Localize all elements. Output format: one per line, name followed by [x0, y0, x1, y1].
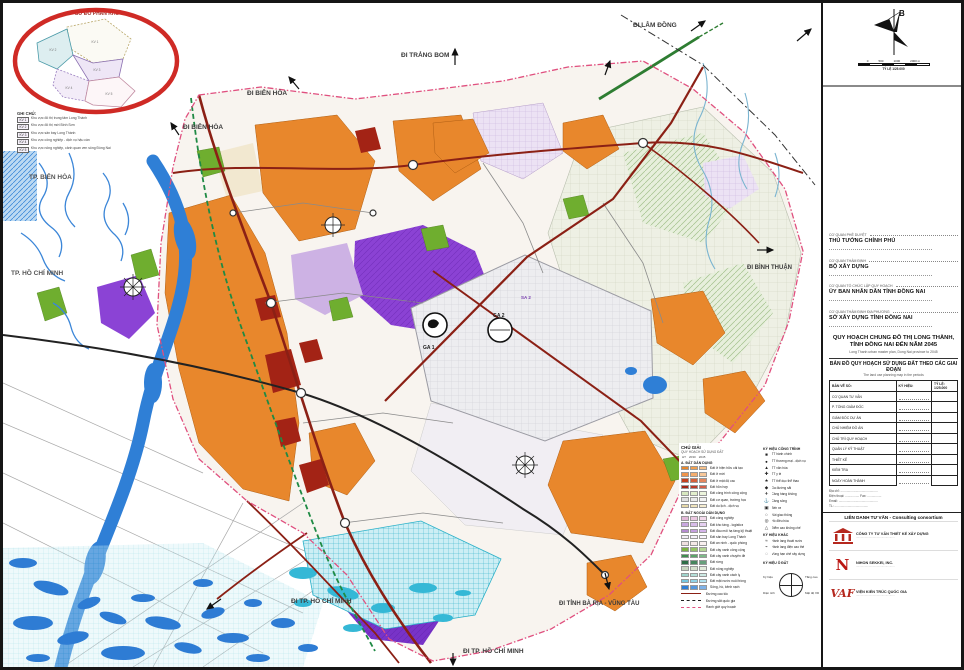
railway-line-sample	[681, 600, 701, 601]
table-row-value	[896, 444, 931, 455]
inset-legend-row: KV 2 Khu vực đô thị mới Bình Sơn	[17, 124, 175, 130]
legend-swatch	[690, 573, 698, 578]
table-row-signature	[932, 444, 958, 455]
legend-swatch	[681, 535, 689, 540]
legend-row-label: Đường cao tốc	[706, 592, 728, 596]
legend-swatch	[699, 478, 707, 483]
consultant-detail: ........................................…	[856, 565, 895, 569]
legend-swatch	[681, 579, 689, 584]
legend-swatch	[699, 491, 707, 496]
table-row-label: QUẢN LÝ KỸ THUẬT	[830, 444, 897, 455]
inset-legend-row: KV 3 Khu vực sân bay Long Thành	[17, 132, 175, 138]
consultant-detail: ........................................…	[856, 594, 907, 598]
legend-symbol-icon: ✈	[763, 491, 770, 497]
label-di-lam-dong: ĐI LÂM ĐỒNG	[633, 19, 677, 29]
legend-symbol-row: ✚ TT y tế	[763, 471, 815, 478]
label-di-bien-hoa-2: ĐI BIÊN HÒA	[183, 122, 223, 131]
legend-swatch	[690, 466, 698, 471]
signature-line	[829, 295, 932, 301]
label-ga2: GA 2	[493, 313, 505, 319]
legend-swatch	[681, 585, 689, 590]
inset-legend-row: KV 5 Khu vực nông nghiệp, cảnh quan ven …	[17, 147, 175, 153]
legend-swatch	[681, 504, 689, 509]
legend-swatch	[690, 560, 698, 565]
legend-symbol-row: ◌ Vùng hạn chế xây dựng	[763, 551, 815, 558]
table-row-signature	[932, 454, 958, 465]
legend-symbol-icon: ○	[763, 512, 770, 517]
label-ga1: GA 1	[423, 345, 435, 351]
legend-row-label: Đất cây xanh cách ly	[710, 573, 740, 577]
legend-row-label: Đường sắt quốc gia	[706, 599, 735, 603]
consortium-line: LIÊN DANH TƯ VẤN - Consulting consortium	[823, 512, 964, 521]
table-row: CƠ QUAN TƯ VẤN	[830, 391, 958, 402]
north-arrow-icon: B	[866, 7, 922, 57]
legend-phase: 2045	[699, 455, 706, 459]
legend-group-a: Đất ở hiện hữu cải tạo Đất ở mới	[681, 465, 761, 509]
legend-symbol-row: △ Điểm cao khống chế	[763, 525, 815, 532]
scale-caption: TỶ LỆ 1/25.000	[882, 67, 904, 71]
legend-symbol-icon: ★	[763, 478, 770, 484]
highway-line-sample	[681, 593, 701, 594]
legend-row-label: Đất công trình công cộng	[710, 491, 747, 495]
drawing-title-block: BẢN ĐỒ QUY HOẠCH SỬ DỤNG ĐẤT THEO CÁC GI…	[829, 358, 958, 377]
legend-row-label: Đất ở mới	[710, 472, 725, 476]
legend-swatch	[690, 497, 698, 502]
table-row-label: NGÀY HOÀN THÀNH	[830, 475, 897, 486]
scale-bar: 050010002000 m TỶ LỆ 1/25.000	[858, 59, 930, 71]
legend-swatch	[699, 560, 707, 565]
legend-row-label: Đất cây xanh chuyên đề	[710, 554, 745, 558]
agency-role-label: CƠ QUAN THẨM ĐỊNH ĐỊA PHƯƠNG	[829, 310, 890, 314]
legend-symbol-icon: ▲	[763, 465, 770, 470]
table-row: GIÁM ĐỐC DỰ ÁN	[830, 412, 958, 423]
inset-svg: SƠ ĐỒ PHÂN KHU KV 1 KV 2 KV 3 KV 4 KV 5	[9, 5, 181, 117]
legend-swatch	[699, 554, 707, 559]
legend-swatch	[690, 585, 698, 590]
inset-zone-code: KV 1	[17, 117, 29, 123]
legend-swatch	[690, 541, 698, 546]
agency-block: CƠ QUAN PHÊ DUYỆT THỦ TƯỚNG CHÍNH PHỦ	[829, 233, 958, 250]
table-row: THIẾT KẾ	[830, 454, 958, 465]
legend-swatch	[681, 554, 689, 559]
agency-name: SỞ XÂY DỰNG TỈNH ĐỒNG NAI	[829, 315, 958, 321]
signature-line	[829, 244, 932, 250]
legend-swatch	[699, 497, 707, 502]
legend-row-label: Đất đầu mối hạ tầng kỹ thuật	[710, 529, 752, 533]
legend-symbol-label: Bến xe	[772, 506, 782, 510]
legend-swatch	[681, 466, 689, 471]
legend-line-hwy: Đường cao tốc	[681, 591, 761, 598]
signature-line	[829, 321, 932, 327]
legend-symbol-label: Hồ điều hòa	[772, 519, 789, 523]
inset-zone-code: KV 2	[17, 124, 29, 130]
plan-sheet: ĐI TRẢNG BOM ĐI LÂM ĐỒNG ĐI BIÊN HÒA ĐI …	[0, 0, 964, 670]
legend-swatch	[699, 541, 707, 546]
legend-symbol-row: ★ TT thể dục thể thao	[763, 478, 815, 485]
legend-symbol-row: ◆ Ga đường sắt	[763, 484, 815, 491]
block-note-title: KÝ HIỆU Ô ĐẤT	[763, 561, 815, 565]
legend-group-b: Đất công nghiệp Đất kho tàng - logistics	[681, 515, 761, 546]
inset-map: SƠ ĐỒ PHÂN KHU KV 1 KV 2 KV 3 KV 4 KV 5	[9, 5, 181, 117]
legend-symbol-icon: ≈	[763, 538, 770, 543]
legend-others: ≈ Hành lang thoát nước ⌁ Hành lang điện …	[763, 537, 815, 557]
legend-row: Đất du lịch - dịch vụ	[681, 503, 761, 509]
legend-symbol-label: Điểm cao khống chế	[772, 526, 801, 530]
legend-row-label: Đất nông nghiệp	[710, 567, 734, 571]
legend-swatch	[681, 497, 689, 502]
table-row-label: CƠ QUAN TƯ VẤN	[830, 391, 897, 402]
legend-row-label: Đất an ninh - quốc phòng	[710, 541, 747, 545]
table-row-value	[896, 402, 931, 413]
compass-area: B 050010002000 m TỶ LỆ 1/25.000	[823, 3, 964, 87]
table-row: CHỦ TRÌ QUY HOẠCH	[830, 433, 958, 444]
legend-swatch	[681, 547, 689, 552]
signature-table: BẢN VẼ SỐ:KÝ HIỆU:TỶ LỆ: 1/25.000 CƠ QUA…	[829, 380, 958, 486]
block-note-bl: Diện tích	[763, 591, 775, 595]
svg-text:KV 4: KV 4	[66, 86, 73, 90]
label-di-binh-thuan: ĐI BÌNH THUẬN	[747, 263, 792, 271]
legend-swatch	[681, 541, 689, 546]
legend-symbol-label: Hành lang điện cao thế	[772, 545, 805, 549]
pavilion-logo-icon	[829, 528, 856, 544]
legend-swatch	[699, 585, 707, 590]
legend-row-label: Ranh giới quy hoạch	[706, 605, 736, 609]
legend-symbol-row: ● TT thương mại - dịch vụ	[763, 458, 815, 465]
legend-symbol-label: Ga đường sắt	[772, 486, 792, 490]
label-di-bien-hoa-1: ĐI BIÊN HÒA	[247, 88, 287, 97]
consultant-detail: ........................................…	[856, 536, 929, 540]
legend-phase-header: HT20302045	[682, 455, 761, 459]
legend-symbol-icon: ◎	[763, 518, 770, 524]
table-row-label: THIẾT KẾ	[830, 454, 897, 465]
legend-row-label: Đất rừng	[710, 560, 723, 564]
legend-line-boundary: Ranh giới quy hoạch	[681, 604, 761, 611]
table-header-cell: BẢN VẼ SỐ:	[830, 381, 897, 392]
legend-swatch	[690, 491, 698, 496]
legend-swatch	[681, 529, 689, 534]
legend-group-c: Đất cây xanh công cộng Đất cây xanh chuy…	[681, 547, 761, 591]
inset-legend: GHI CHÚ: KV 1 Khu vực đô thị trung tâm L…	[17, 111, 175, 154]
legend-row-label: Đất ở mật độ cao	[710, 479, 735, 483]
legend-swatch	[681, 566, 689, 571]
legend-symbol-label: TT thương mại - dịch vụ	[772, 459, 806, 463]
title-block: B 050010002000 m TỶ LỆ 1/25.000 CƠ QUAN …	[821, 3, 964, 667]
scale-bar-graphic	[858, 63, 930, 66]
table-row: NGÀY HOÀN THÀNH	[830, 475, 958, 486]
legend-swatch	[681, 516, 689, 521]
legend-swatch	[699, 535, 707, 540]
legend-symbol-label: Nút giao thông	[772, 513, 793, 517]
legend-symbol-label: Cảng hàng không	[772, 492, 797, 496]
north-label: B	[899, 9, 905, 18]
legend-swatch	[681, 573, 689, 578]
legend-swatch	[699, 547, 707, 552]
table-row-value	[896, 423, 931, 434]
project-subtitle: Long Thanh urban master plan, Dong Nai p…	[829, 350, 958, 354]
legend-symbol-icon: △	[763, 525, 770, 531]
vaf-logo-icon: VAF	[829, 587, 856, 600]
table-row: QUẢN LÝ KỸ THUẬT	[830, 444, 958, 455]
table-row: KIỂM TRA	[830, 465, 958, 476]
legend-symbol-icon: ■	[763, 452, 770, 457]
legend-swatch	[681, 478, 689, 483]
legend-symbol-label: TT văn hóa	[772, 466, 788, 470]
legend-swatch	[690, 529, 698, 534]
legend-swatch	[690, 478, 698, 483]
dotted-filler	[870, 235, 958, 236]
legend-row-label: Đất hỗn hợp	[710, 485, 728, 489]
table-row-signature	[932, 423, 958, 434]
legend-swatch	[699, 485, 707, 490]
map-canvas: ĐI TRẢNG BOM ĐI LÂM ĐỒNG ĐI BIÊN HÒA ĐI …	[3, 3, 821, 667]
agency-role-label: CƠ QUAN PHÊ DUYỆT	[829, 233, 867, 237]
label-sa1: SA 1	[407, 299, 417, 304]
agency-block: CƠ QUAN TỔ CHỨC LẬP QUY HOẠCH ỦY BAN NHÂ…	[829, 284, 958, 301]
table-row-value	[896, 433, 931, 444]
inset-legend-row: KV 1 Khu vực đô thị trung tâm Long Thành	[17, 117, 175, 123]
label-sa2: SA 2	[521, 295, 531, 300]
legend-symbol-row: ▲ TT văn hóa	[763, 464, 815, 471]
legend-swatch	[681, 560, 689, 565]
legend-symbol-row: ◎ Hồ điều hòa	[763, 518, 815, 525]
legend-swatch	[699, 504, 707, 509]
legend-swatch	[690, 566, 698, 571]
table-row-label: GIÁM ĐỐC DỰ ÁN	[830, 412, 897, 423]
legend-symbol-icon: ●	[763, 459, 770, 464]
legend-row-label: Đất kho tàng - logistics	[710, 523, 743, 527]
legend-swatch	[681, 472, 689, 477]
legend-symbol-label: TT y tế	[772, 472, 782, 476]
table-header-cell: TỶ LỆ: 1/25.000	[932, 381, 958, 392]
legend-swatch	[681, 485, 689, 490]
legend-subtitle: QUY HOẠCH SỬ DỤNG ĐẤT	[681, 450, 761, 454]
legend-row-label: Đất cơ quan, trường học	[710, 498, 746, 502]
legend-swatch	[690, 485, 698, 490]
legend-swatch	[690, 522, 698, 527]
table-row: CHỦ NHIỆM ĐỒ ÁN	[830, 423, 958, 434]
signature-table-body: CƠ QUAN TƯ VẤN P. TỔNG GIÁM ĐỐC GIÁM ĐỐC…	[830, 391, 958, 486]
agency-role-label: CƠ QUAN TỔ CHỨC LẬP QUY HOẠCH	[829, 284, 893, 288]
drawing-subtitle: The land use planning map in the periods	[829, 373, 958, 377]
table-row-signature	[932, 475, 958, 486]
inset-zone-text: Khu vực sân bay Long Thành	[31, 132, 75, 136]
legend-swatch	[690, 504, 698, 509]
table-row-signature	[932, 402, 958, 413]
legend-symbol-row: ▣ Bến xe	[763, 505, 815, 512]
legend-swatch	[690, 472, 698, 477]
inset-legend-rows: KV 1 Khu vực đô thị trung tâm Long Thành…	[17, 117, 175, 153]
inset-zone-code: KV 5	[17, 147, 29, 153]
legend-symbol-row: ✈ Cảng hàng không	[763, 491, 815, 498]
legend-symbol-row: ≈ Hành lang thoát nước	[763, 537, 815, 544]
label-di-ba-ria: ĐI TỈNH BÀ RỊA - VŨNG TÀU	[559, 600, 639, 607]
legend-row-label: Đất công nghiệp	[710, 516, 734, 520]
table-row-signature	[932, 433, 958, 444]
legend-symbols: ■ TT hành chính ● TT thương mại - dịch v…	[763, 451, 815, 531]
legend-row-label: Đất sân bay Long Thành	[710, 535, 746, 539]
svg-text:KV 3: KV 3	[94, 68, 101, 72]
map-legend: CHÚ GIẢI QUY HOẠCH SỬ DỤNG ĐẤT HT2030204…	[679, 443, 817, 669]
block-note-tl: Ký hiệu	[763, 575, 773, 579]
table-row-signature	[932, 391, 958, 402]
block-code-note: KÝ HIỆU Ô ĐẤT Ký hiệu Tầng cao Diện tích…	[763, 561, 815, 613]
inset-zone-text: Khu vực đô thị trung tâm Long Thành	[31, 117, 87, 121]
legend-symbol-label: TT thể dục thể thao	[772, 479, 800, 483]
drawing-title: BẢN ĐỒ QUY HOẠCH SỬ DỤNG ĐẤT THEO CÁC GI…	[829, 361, 958, 373]
block-code-circle	[779, 573, 803, 597]
agency-list: CƠ QUAN PHÊ DUYỆT THỦ TƯỚNG CHÍNH PHỦ CƠ…	[829, 233, 958, 327]
inset-zone-text: Khu vực công nghiệp - dịch vụ hậu cần	[31, 139, 90, 143]
legend-swatch	[699, 472, 707, 477]
legend-swatch	[690, 535, 698, 540]
legend-swatch	[690, 554, 698, 559]
legend-row-label: Sông, hồ, kênh rạch	[710, 585, 740, 589]
svg-text:KV 1: KV 1	[92, 40, 99, 44]
table-row-signature	[932, 465, 958, 476]
address-line: TL: ....................................…	[829, 504, 958, 509]
agency-name: THỦ TƯỚNG CHÍNH PHỦ	[829, 238, 958, 244]
legend-symbol-icon: ✚	[763, 471, 770, 477]
signature-line	[829, 270, 932, 276]
project-title-block: QUY HOẠCH CHUNG ĐÔ THỊ LONG THÀNH, TỈNH …	[829, 335, 958, 354]
legend-swatch	[699, 529, 707, 534]
dotted-filler	[893, 312, 958, 313]
agency-role-label: CƠ QUAN THẨM ĐỊNH	[829, 259, 866, 263]
legend-symbol-icon: ◆	[763, 485, 770, 491]
legend-swatch	[690, 516, 698, 521]
table-row-label: CHỦ NHIỆM ĐỒ ÁN	[830, 423, 897, 434]
table-row-value	[896, 454, 931, 465]
inset-zone-text: Khu vực nông nghiệp, cảnh quan ven sông …	[31, 147, 111, 151]
legend-row-label: Đất ở hiện hữu cải tạo	[710, 466, 743, 470]
table-row-label: KIỂM TRA	[830, 465, 897, 476]
inset-zone-text: Khu vực đô thị mới Bình Sơn	[31, 124, 75, 128]
legend-swatch	[699, 516, 707, 521]
boundary-line-sample	[681, 607, 701, 608]
legend-row-label: Đất mặt nước nuôi trồng	[710, 579, 746, 583]
label-di-trang-bom: ĐI TRẢNG BOM	[401, 50, 449, 59]
legend-phase: HT	[682, 455, 686, 459]
svg-text:KV 2: KV 2	[50, 48, 57, 52]
table-row-value	[896, 412, 931, 423]
legend-swatch	[690, 547, 698, 552]
nihon-sekkei-logo-icon: N	[829, 556, 856, 574]
legend-symbol-row: ○ Nút giao thông	[763, 511, 815, 518]
consultant-logo-row-3: VAF VIỆN KIẾN TRÚC QUỐC GIA ............…	[829, 579, 958, 608]
legend-symbol-label: Cảng sông	[772, 499, 787, 503]
legend-phase: 2030	[689, 455, 696, 459]
dotted-filler	[896, 286, 958, 287]
inset-zone-code: KV 3	[17, 132, 29, 138]
legend-symbol-row: ■ TT hành chính	[763, 451, 815, 458]
legend-swatch	[699, 579, 707, 584]
legend-symbol-icon: ◌	[763, 551, 770, 556]
legend-symbol-label: Hành lang thoát nước	[772, 539, 803, 543]
legend-swatch	[681, 522, 689, 527]
inset-zone-code: KV 4	[17, 139, 29, 145]
table-row-value	[896, 475, 931, 486]
svg-text:KV 5: KV 5	[106, 92, 113, 96]
legend-symbol-label: Vùng hạn chế xây dựng	[772, 552, 806, 556]
table-row-label: CHỦ TRÌ QUY HOẠCH	[830, 433, 897, 444]
legend-swatch	[699, 573, 707, 578]
legend-swatch	[699, 522, 707, 527]
legend-row-label: Đất cây xanh công cộng	[710, 548, 745, 552]
signature-table-header: BẢN VẼ SỐ:KÝ HIỆU:TỶ LỆ: 1/25.000	[830, 381, 958, 392]
table-row-signature	[932, 412, 958, 423]
legend-symbol-row: ⌁ Hành lang điện cao thế	[763, 544, 815, 551]
table-row: P. TỔNG GIÁM ĐỐC	[830, 402, 958, 413]
agency-block: CƠ QUAN THẨM ĐỊNH BỘ XÂY DỰNG	[829, 259, 958, 276]
table-row-value	[896, 391, 931, 402]
inset-legend-row: KV 4 Khu vực công nghiệp - dịch vụ hậu c…	[17, 139, 175, 145]
block-note-br: Mật độ XD	[805, 591, 819, 595]
consultant-logo-row-2: N NIHON SEKKEI, INC. ...................…	[829, 550, 958, 579]
table-row-label: P. TỔNG GIÁM ĐỐC	[830, 402, 897, 413]
legend-symbol-icon: ▣	[763, 505, 770, 511]
address-block: Địa chỉ: ...............................…	[829, 489, 958, 508]
label-tp-bien-hoa: TP. BIÊN HÒA	[29, 172, 72, 181]
project-title: QUY HOẠCH CHUNG ĐÔ THỊ LONG THÀNH, TỈNH …	[829, 335, 958, 349]
legend-swatch	[699, 466, 707, 471]
inset-zone-4	[53, 69, 89, 101]
legend-line-rail: Đường sắt quốc gia	[681, 597, 761, 604]
legend-swatch	[681, 491, 689, 496]
legend-symbol-icon: ⚓	[763, 498, 770, 504]
legend-symbol-icon: ⌁	[763, 544, 770, 550]
consultant-logo-row-1: CÔNG TY TƯ VẤN THIẾT KẾ XÂY DỰNG .......…	[829, 521, 958, 550]
legend-symbol-row: ⚓ Cảng sông	[763, 498, 815, 505]
legend-swatch	[699, 566, 707, 571]
table-header-cell: KÝ HIỆU:	[896, 381, 931, 392]
dotted-filler	[869, 261, 958, 262]
label-tp-hcm: TP. HỒ CHÍ MINH	[11, 267, 64, 277]
table-row-value	[896, 465, 931, 476]
legend-row-label: Đất du lịch - dịch vụ	[710, 504, 739, 508]
agency-name: ỦY BAN NHÂN DÂN TỈNH ĐỒNG NAI	[829, 289, 958, 295]
legend-symbol-label: TT hành chính	[772, 452, 793, 456]
block-note-tr: Tầng cao	[805, 575, 818, 579]
agency-block: CƠ QUAN THẨM ĐỊNH ĐỊA PHƯƠNG SỞ XÂY DỰNG…	[829, 310, 958, 327]
legend-swatch	[690, 579, 698, 584]
